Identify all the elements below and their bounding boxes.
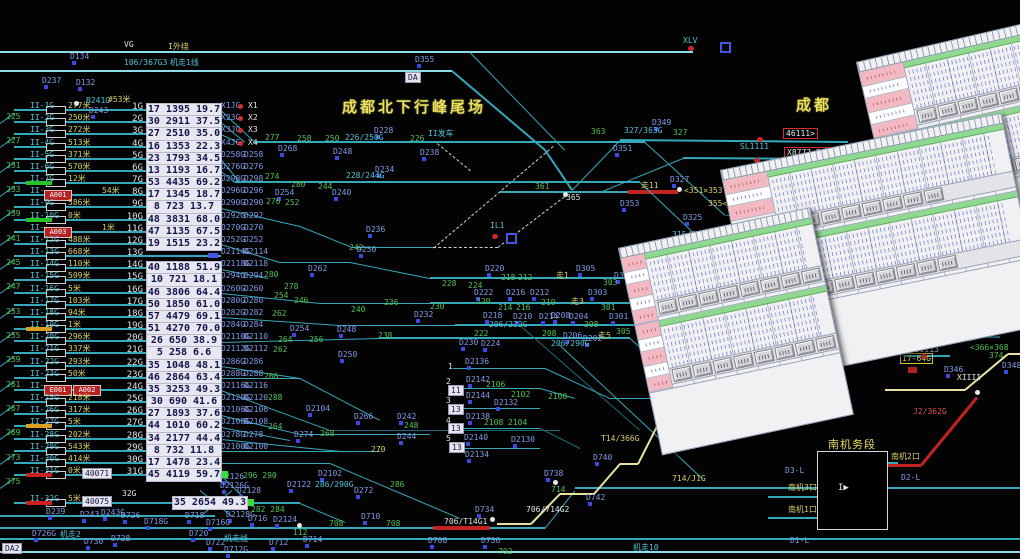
signal-lamp-red <box>757 137 763 142</box>
switch-dot-blue <box>82 519 86 523</box>
signal-label: D292 <box>244 211 263 220</box>
popup-button[interactable] <box>882 195 903 212</box>
depot-signal-d2l: D2-L <box>901 473 920 482</box>
map-label: 714 <box>551 485 565 494</box>
signal-label: D2116 <box>244 381 268 390</box>
popup-button[interactable] <box>795 339 816 356</box>
map-label: 228 <box>442 279 456 288</box>
popup-button[interactable] <box>671 366 692 383</box>
track-length-label: 54米 <box>102 186 120 195</box>
map-label: 270 <box>371 445 385 454</box>
track-length-label: 371米 <box>68 150 90 159</box>
track-length-label: 103米 <box>68 296 90 305</box>
map-label: 702 <box>498 547 512 556</box>
map-label: 714/J1G <box>672 474 706 483</box>
switch-dot-blue <box>508 297 512 301</box>
track-length-label: 296米 <box>68 332 90 341</box>
popup-button[interactable] <box>862 200 883 217</box>
track-id-label: 17G <box>118 298 143 307</box>
track-id-label: 14G <box>118 261 143 270</box>
map-label: <351×353 <box>684 186 723 195</box>
track-number-label: 233 <box>6 185 20 194</box>
signal-label: D2106 <box>244 405 268 414</box>
map-label: D726G <box>32 529 56 538</box>
yard-title-partial: 成都 <box>796 94 832 115</box>
map-label: 280 <box>264 270 278 279</box>
depot-port-2: 南机2口 <box>891 452 920 461</box>
switch-dot-blue <box>72 61 76 65</box>
map-label: 212 <box>518 273 532 282</box>
value-box-label[interactable]: 13 <box>449 442 465 453</box>
track-length-label: 337米 <box>68 344 90 353</box>
map-label: D272 <box>354 486 373 495</box>
popup-button[interactable] <box>896 263 917 280</box>
popup-button[interactable] <box>841 204 862 221</box>
track-id-label: 21G <box>118 346 143 355</box>
track-line <box>436 143 470 172</box>
signal-label: X1 <box>248 101 258 110</box>
map-label: D712G <box>224 545 248 554</box>
track-name-label: II-27G <box>30 417 59 426</box>
switch-dot-blue <box>86 546 90 550</box>
signal-label: X2 <box>248 113 258 122</box>
value-box-label[interactable]: 13 <box>448 404 464 415</box>
map-label: 305 <box>616 327 630 336</box>
popup-button[interactable] <box>815 335 836 352</box>
track-length-label: 0米 <box>68 466 81 475</box>
map-label: 288 <box>268 393 282 402</box>
track-data-value[interactable]: 44 1010 60.2 <box>146 419 222 433</box>
map-label: D2130 <box>511 435 535 444</box>
popup-button[interactable] <box>713 357 734 374</box>
switch-dot-blue <box>685 222 689 226</box>
map-label: D224 <box>481 339 500 348</box>
track-number-label: 269 <box>6 428 20 437</box>
map-label: 走1 <box>556 271 569 280</box>
map-label: D254 <box>290 324 309 333</box>
switch-dot-blue <box>113 543 117 547</box>
track-length-label: 5米 <box>68 417 81 426</box>
signal-label: D294 <box>244 271 263 280</box>
switch-dot-blue <box>308 413 312 417</box>
track-name-label: II-30G <box>30 454 59 463</box>
signal-label: D2112 <box>244 344 268 353</box>
popup-button[interactable] <box>692 361 713 378</box>
ctc-track-diagram: 成都北下行峰尾场 成都 225II-1G277米1G17 1395 19.7X1… <box>0 0 1020 559</box>
signal-label: D252 <box>244 235 263 244</box>
track-length-label: 668米 <box>68 247 90 256</box>
track-line <box>0 527 433 529</box>
switch-dot-blue <box>513 444 517 448</box>
track-line <box>620 139 848 143</box>
track-line <box>320 303 430 304</box>
switch-dot-blue <box>226 554 230 558</box>
switch-dot-blue <box>250 523 254 527</box>
signal-label: D282G <box>221 308 245 317</box>
popup-button[interactable] <box>801 268 822 285</box>
switch-dot-blue <box>146 526 150 530</box>
map-label: D355 <box>415 55 434 64</box>
track-data-value[interactable]: 10 721 18.1 <box>146 273 222 287</box>
track-data-value[interactable]: 45 4119 59.7 <box>146 468 222 482</box>
track-line <box>300 226 352 248</box>
switch-point-white <box>563 192 568 197</box>
track-data-value[interactable]: 8 723 13.7 <box>146 200 222 214</box>
map-label: 246 <box>294 296 308 305</box>
track-length-label: 414米 <box>68 454 90 463</box>
switch-dot-blue <box>339 334 343 338</box>
map-label: D2134 <box>465 450 489 459</box>
popup-button[interactable] <box>754 348 775 365</box>
track-number-label: 275 <box>6 477 20 486</box>
map-label: 机走1线 <box>170 58 199 67</box>
map-label: 363 <box>591 127 605 136</box>
map-label: 296 290 <box>243 471 277 480</box>
map-label: 机走2 <box>60 530 81 539</box>
map-label: D239 <box>46 507 65 516</box>
switch-dot-blue <box>356 495 360 499</box>
map-label: 264 <box>268 422 282 431</box>
track-data-value[interactable]: 5 258 6.6 <box>146 346 222 360</box>
track-id-label: 6G <box>118 164 143 173</box>
track-data-value[interactable]: 19 1515 23.2 <box>146 237 222 251</box>
map-label: D2124 <box>273 515 297 524</box>
track-id-label: 22G <box>118 359 143 368</box>
switch-dot-blue <box>399 441 403 445</box>
signal-label: D278 <box>244 430 263 439</box>
switch-dot-blue <box>467 366 471 370</box>
signal-label: D294G <box>221 271 245 280</box>
switch-indicator[interactable] <box>208 253 218 258</box>
switch-dot-blue <box>946 374 950 378</box>
map-label: 236 <box>384 298 398 307</box>
map-label: 206/290G <box>551 339 590 348</box>
signal-label: D288 <box>244 369 263 378</box>
map-label: XLV <box>683 36 697 45</box>
track-length-label: 1米 <box>102 223 115 232</box>
track-number-label: 239 <box>6 209 20 218</box>
popup-button[interactable] <box>719 285 740 302</box>
signal-label: D296 <box>244 186 263 195</box>
signal-label: D284G <box>221 320 245 329</box>
train-id-box[interactable]: 40075 <box>82 496 112 507</box>
switch-dot-blue <box>422 157 426 161</box>
switch-dot-blue <box>430 545 434 549</box>
map-label: 277 <box>265 133 279 142</box>
signal-label: D286G <box>221 357 245 366</box>
track-length-label: 272米 <box>68 125 90 134</box>
track-name-label: II-4G <box>30 138 54 147</box>
map-label: D718G <box>144 517 168 526</box>
map-label: 252 <box>285 198 299 207</box>
map-label: 365 <box>566 193 580 202</box>
switch-dot-blue <box>123 520 127 524</box>
popup-button[interactable] <box>678 294 699 311</box>
map-label: D2104 <box>306 404 330 413</box>
value-box-label[interactable]: DA <box>405 72 421 83</box>
track-line <box>453 448 540 449</box>
map-label: 1 <box>448 362 453 371</box>
track-name-label: II-5G <box>30 150 54 159</box>
popup-button[interactable] <box>923 187 944 204</box>
map-label: I外绕 <box>168 42 189 51</box>
popup-button[interactable] <box>774 344 795 361</box>
popup-button[interactable] <box>998 87 1019 104</box>
track-number-label: 247 <box>6 282 20 291</box>
map-label: VG <box>124 40 134 49</box>
signal-label: D286 <box>244 357 263 366</box>
signal-label: D260G <box>221 284 245 293</box>
depot-signal-d1l: D1-L <box>790 536 809 545</box>
track-line <box>433 526 490 530</box>
map-label: D303 <box>588 288 607 297</box>
track-name-label: II-26G <box>30 405 59 414</box>
switch-dot-blue <box>208 527 212 531</box>
map-label: D349 <box>652 118 671 127</box>
track-name-label: II-17G <box>30 296 59 305</box>
alarm-box-red <box>908 367 917 373</box>
map-label: D728 <box>111 534 130 543</box>
track-line <box>280 262 350 263</box>
switch-dot-blue <box>48 516 52 520</box>
popup-button[interactable] <box>733 352 754 369</box>
track-name-label: II-7G <box>30 174 54 183</box>
yard-title: 成都北下行峰尾场 <box>342 96 486 117</box>
map-label: 218 <box>501 273 515 282</box>
signal-label: X4 <box>248 138 258 147</box>
value-box-label[interactable]: 11 <box>448 385 464 396</box>
switch-dot-blue <box>622 208 626 212</box>
track-id-label: 7G <box>118 176 143 185</box>
map-label: D248 <box>333 147 352 156</box>
track-name-label: II-1G <box>30 101 54 110</box>
switch-dot-blue <box>578 273 582 277</box>
map-label: 374 <box>989 351 1003 360</box>
popup-button[interactable] <box>916 259 937 276</box>
map-label: D274 <box>294 430 313 439</box>
popup-button[interactable] <box>957 97 978 114</box>
popup-button[interactable] <box>937 102 958 119</box>
track-length-label: 110米 <box>68 259 90 268</box>
track-name-label: II-2G <box>30 113 54 122</box>
map-label: D218 <box>483 311 502 320</box>
map-label: SL1111 <box>740 142 769 151</box>
track-name-label: II-16G <box>30 284 59 293</box>
switch-dot-blue <box>417 64 421 68</box>
map-label: 708 <box>386 519 400 528</box>
switch-dot-blue <box>571 321 575 325</box>
map-label: D712 <box>269 538 288 547</box>
map-label: D254 <box>275 188 294 197</box>
map-label: D720 <box>189 529 208 538</box>
map-label: 274 <box>265 172 279 181</box>
map-label: D2140 <box>464 433 488 442</box>
track-id-label: 10G <box>118 213 143 222</box>
map-label: D2122 <box>287 480 311 489</box>
map-label: D738 <box>544 469 563 478</box>
popup-button[interactable] <box>698 289 719 306</box>
popup-button[interactable] <box>657 298 678 315</box>
track-data-value[interactable]: 27 2510 35.0 <box>146 127 222 141</box>
track-id-label: 15G <box>118 273 143 282</box>
popup-button[interactable] <box>1014 155 1020 172</box>
map-label: 106/367G3 <box>124 58 167 67</box>
track-name-label: II- <box>30 223 44 232</box>
map-label: D351 <box>613 144 632 153</box>
depot-box[interactable] <box>817 451 888 530</box>
track-name-label: II- <box>30 186 44 195</box>
map-label: D301 <box>609 312 628 321</box>
track-line <box>768 496 817 498</box>
track-line <box>432 145 553 249</box>
popup-button[interactable] <box>739 281 760 298</box>
switch-point-white <box>297 523 302 528</box>
map-label: 355< <box>708 199 727 208</box>
track-line <box>255 141 645 143</box>
map-label: D2128 <box>237 486 261 495</box>
track-name-label: II-23G <box>30 369 59 378</box>
popup-button[interactable] <box>820 208 841 225</box>
signal-label: D290G <box>221 198 245 207</box>
switch-dot-blue <box>34 538 38 542</box>
map-label: D742 <box>586 493 605 502</box>
track-id-label: 11G <box>118 225 143 234</box>
track-name-label: II-22G <box>30 357 59 366</box>
switch-dot-blue <box>78 87 82 91</box>
map-label: D250 <box>338 350 357 359</box>
switch-dot-blue <box>468 421 472 425</box>
signal-label: D288G <box>221 369 245 378</box>
map-label: #53米 <box>108 95 130 104</box>
signal-display-box[interactable]: 46111> <box>783 128 818 139</box>
switch-dot-blue <box>208 547 212 551</box>
track-data-value[interactable]: 35 2654 49.3 <box>172 496 248 510</box>
map-label: D237 <box>42 76 61 85</box>
map-label: D242 <box>397 412 416 421</box>
map-label: 238 <box>378 331 392 340</box>
switch-dot-blue <box>363 521 367 525</box>
map-label: 258 <box>297 134 311 143</box>
track-name-label: II-18G <box>30 308 59 317</box>
popup-button[interactable] <box>978 92 999 109</box>
track-length-label: 543米 <box>68 442 90 451</box>
track-line <box>610 398 655 399</box>
track-name-label: II-21G <box>30 344 59 353</box>
map-label: 2100 <box>548 392 567 401</box>
map-label: 298 <box>584 320 598 329</box>
map-label: D2132 <box>494 398 518 407</box>
track-name-label: II-13G <box>30 247 59 256</box>
track-length-label: 509米 <box>68 271 90 280</box>
track-number-label: 231 <box>6 161 20 170</box>
signal-label: D298 <box>244 174 263 183</box>
track-number-label: 261 <box>6 380 20 389</box>
track-name-label: II-3G <box>30 125 54 134</box>
map-label: T14/366G <box>601 434 640 443</box>
track-number-label: 227 <box>6 136 20 145</box>
map-label: D325 <box>683 213 702 222</box>
track-line <box>340 325 455 326</box>
switch-dot-blue <box>546 478 550 482</box>
track-name-label: II-12G <box>30 235 59 244</box>
map-label: D250 <box>357 245 376 254</box>
switch-dot-blue <box>271 547 275 551</box>
map-label: D716G <box>206 518 230 527</box>
map-label: D266 <box>354 412 373 421</box>
track-id-label: 16G <box>118 286 143 295</box>
popup-button[interactable] <box>780 272 801 289</box>
track-id-label: 19G <box>118 322 143 331</box>
map-label: D216 <box>506 288 525 297</box>
signal-label: D252G <box>221 235 245 244</box>
popup-button[interactable] <box>834 276 855 293</box>
map-label: D710 <box>361 512 380 521</box>
track-name-label: II-31G <box>30 466 59 475</box>
popup-button[interactable] <box>916 106 937 123</box>
popup-button[interactable] <box>937 255 958 272</box>
map-label: 2104 <box>508 418 527 427</box>
track-id-label: 20G <box>118 334 143 343</box>
switch-dot-blue <box>335 156 339 160</box>
track-number-label: 245 <box>6 258 20 267</box>
map-label: D222 <box>474 288 493 297</box>
signal-label: D280G <box>221 296 245 305</box>
switch-dot-blue <box>399 421 403 425</box>
switch-dot-blue <box>487 273 491 277</box>
map-label: D134 <box>70 52 89 61</box>
track-name-label: II-29G <box>30 442 59 451</box>
map-label: J2/362G <box>913 407 947 416</box>
map-label: D2136 <box>465 357 489 366</box>
map-label: 262 <box>273 345 287 354</box>
value-box-label[interactable]: 13 <box>448 423 464 434</box>
signal-label: D298G <box>221 174 245 183</box>
map-label: 17-64G <box>900 353 933 364</box>
popup-button[interactable] <box>903 191 924 208</box>
map-label: D722 <box>206 538 225 547</box>
signal-label: D290 <box>244 198 263 207</box>
map-label: D726 <box>121 511 140 520</box>
map-label: D268 <box>278 144 297 153</box>
depot-title: 南机务段 <box>828 436 876 452</box>
track-line <box>1008 353 1020 355</box>
track-name-label: II-10G <box>30 211 59 220</box>
map-label: 216 <box>516 303 530 312</box>
track-id-label: 13G <box>118 249 143 258</box>
train-id-box[interactable]: 40071 <box>82 468 112 479</box>
signal-lamp-red <box>238 128 243 133</box>
track-line <box>433 247 498 249</box>
popup-button[interactable] <box>855 271 876 288</box>
track-number-label: 255 <box>6 331 20 340</box>
map-label: 327 <box>673 128 687 137</box>
track-line <box>620 463 638 465</box>
signal-label: D2100 <box>244 442 268 451</box>
map-label: D228 <box>374 126 393 135</box>
value-box-label[interactable]: DA2 <box>2 543 22 554</box>
signal-lamp-red <box>238 141 243 146</box>
map-label: D740 <box>593 453 612 462</box>
switch-dot-blue <box>416 319 420 323</box>
signal-lamp-red <box>238 116 243 121</box>
map-label: D244 <box>397 432 416 441</box>
signal-label: D2120 <box>244 393 268 402</box>
popup-button[interactable] <box>760 276 781 293</box>
map-label: II发车 <box>428 129 454 138</box>
popup-button[interactable] <box>875 267 896 284</box>
switch-dot-blue <box>280 153 284 157</box>
track-number-label: 267 <box>6 404 20 413</box>
